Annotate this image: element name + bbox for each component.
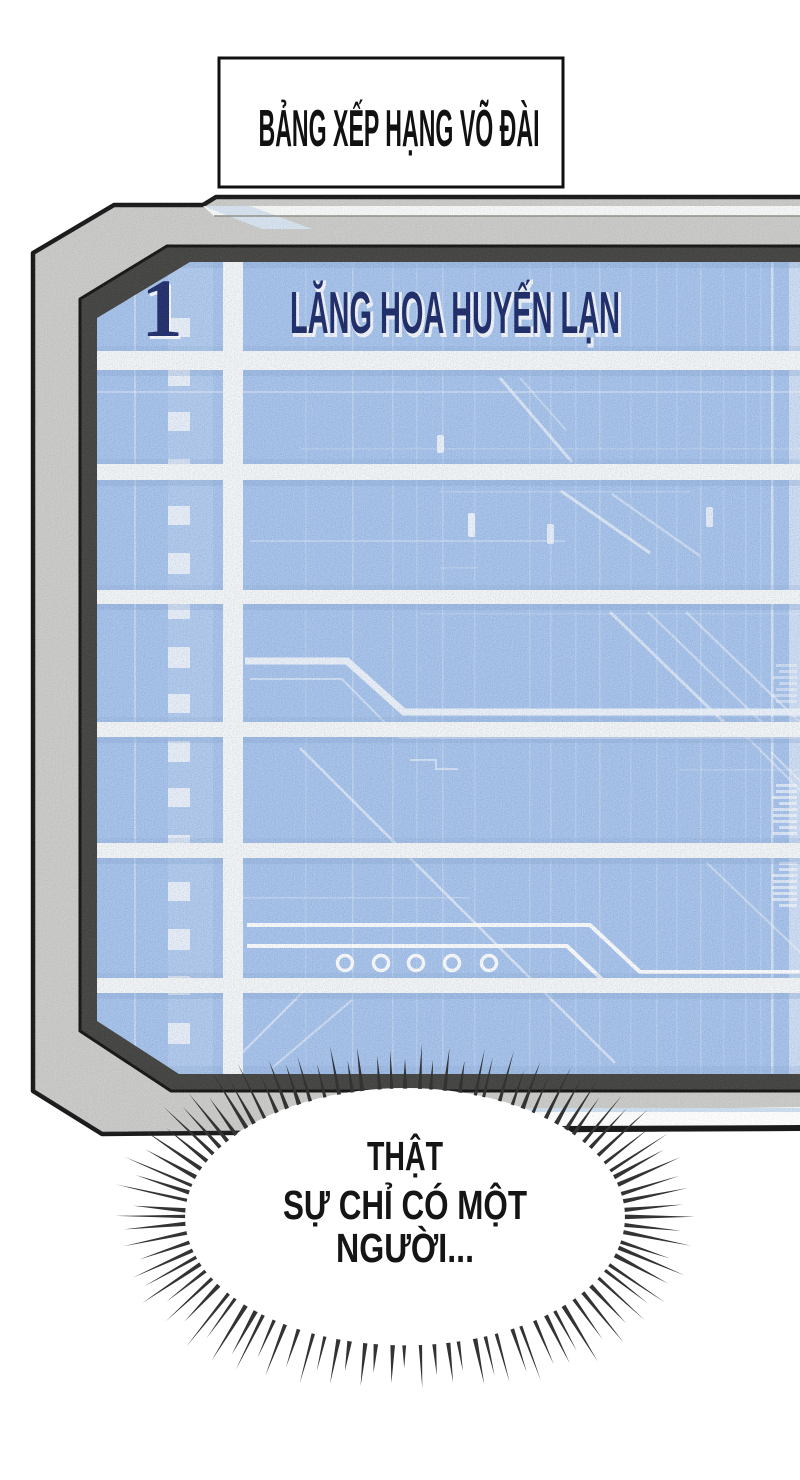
svg-text:SỰ CHỈ CÓ MỘT: SỰ CHỈ CÓ MỘT [283, 1182, 527, 1228]
svg-text:NGƯỜI...: NGƯỜI... [336, 1225, 474, 1271]
svg-text:THẬT: THẬT [367, 1133, 443, 1179]
svg-text:BẢNG XẾP HẠNG VÕ ĐÀI: BẢNG XẾP HẠNG VÕ ĐÀI [259, 99, 540, 158]
